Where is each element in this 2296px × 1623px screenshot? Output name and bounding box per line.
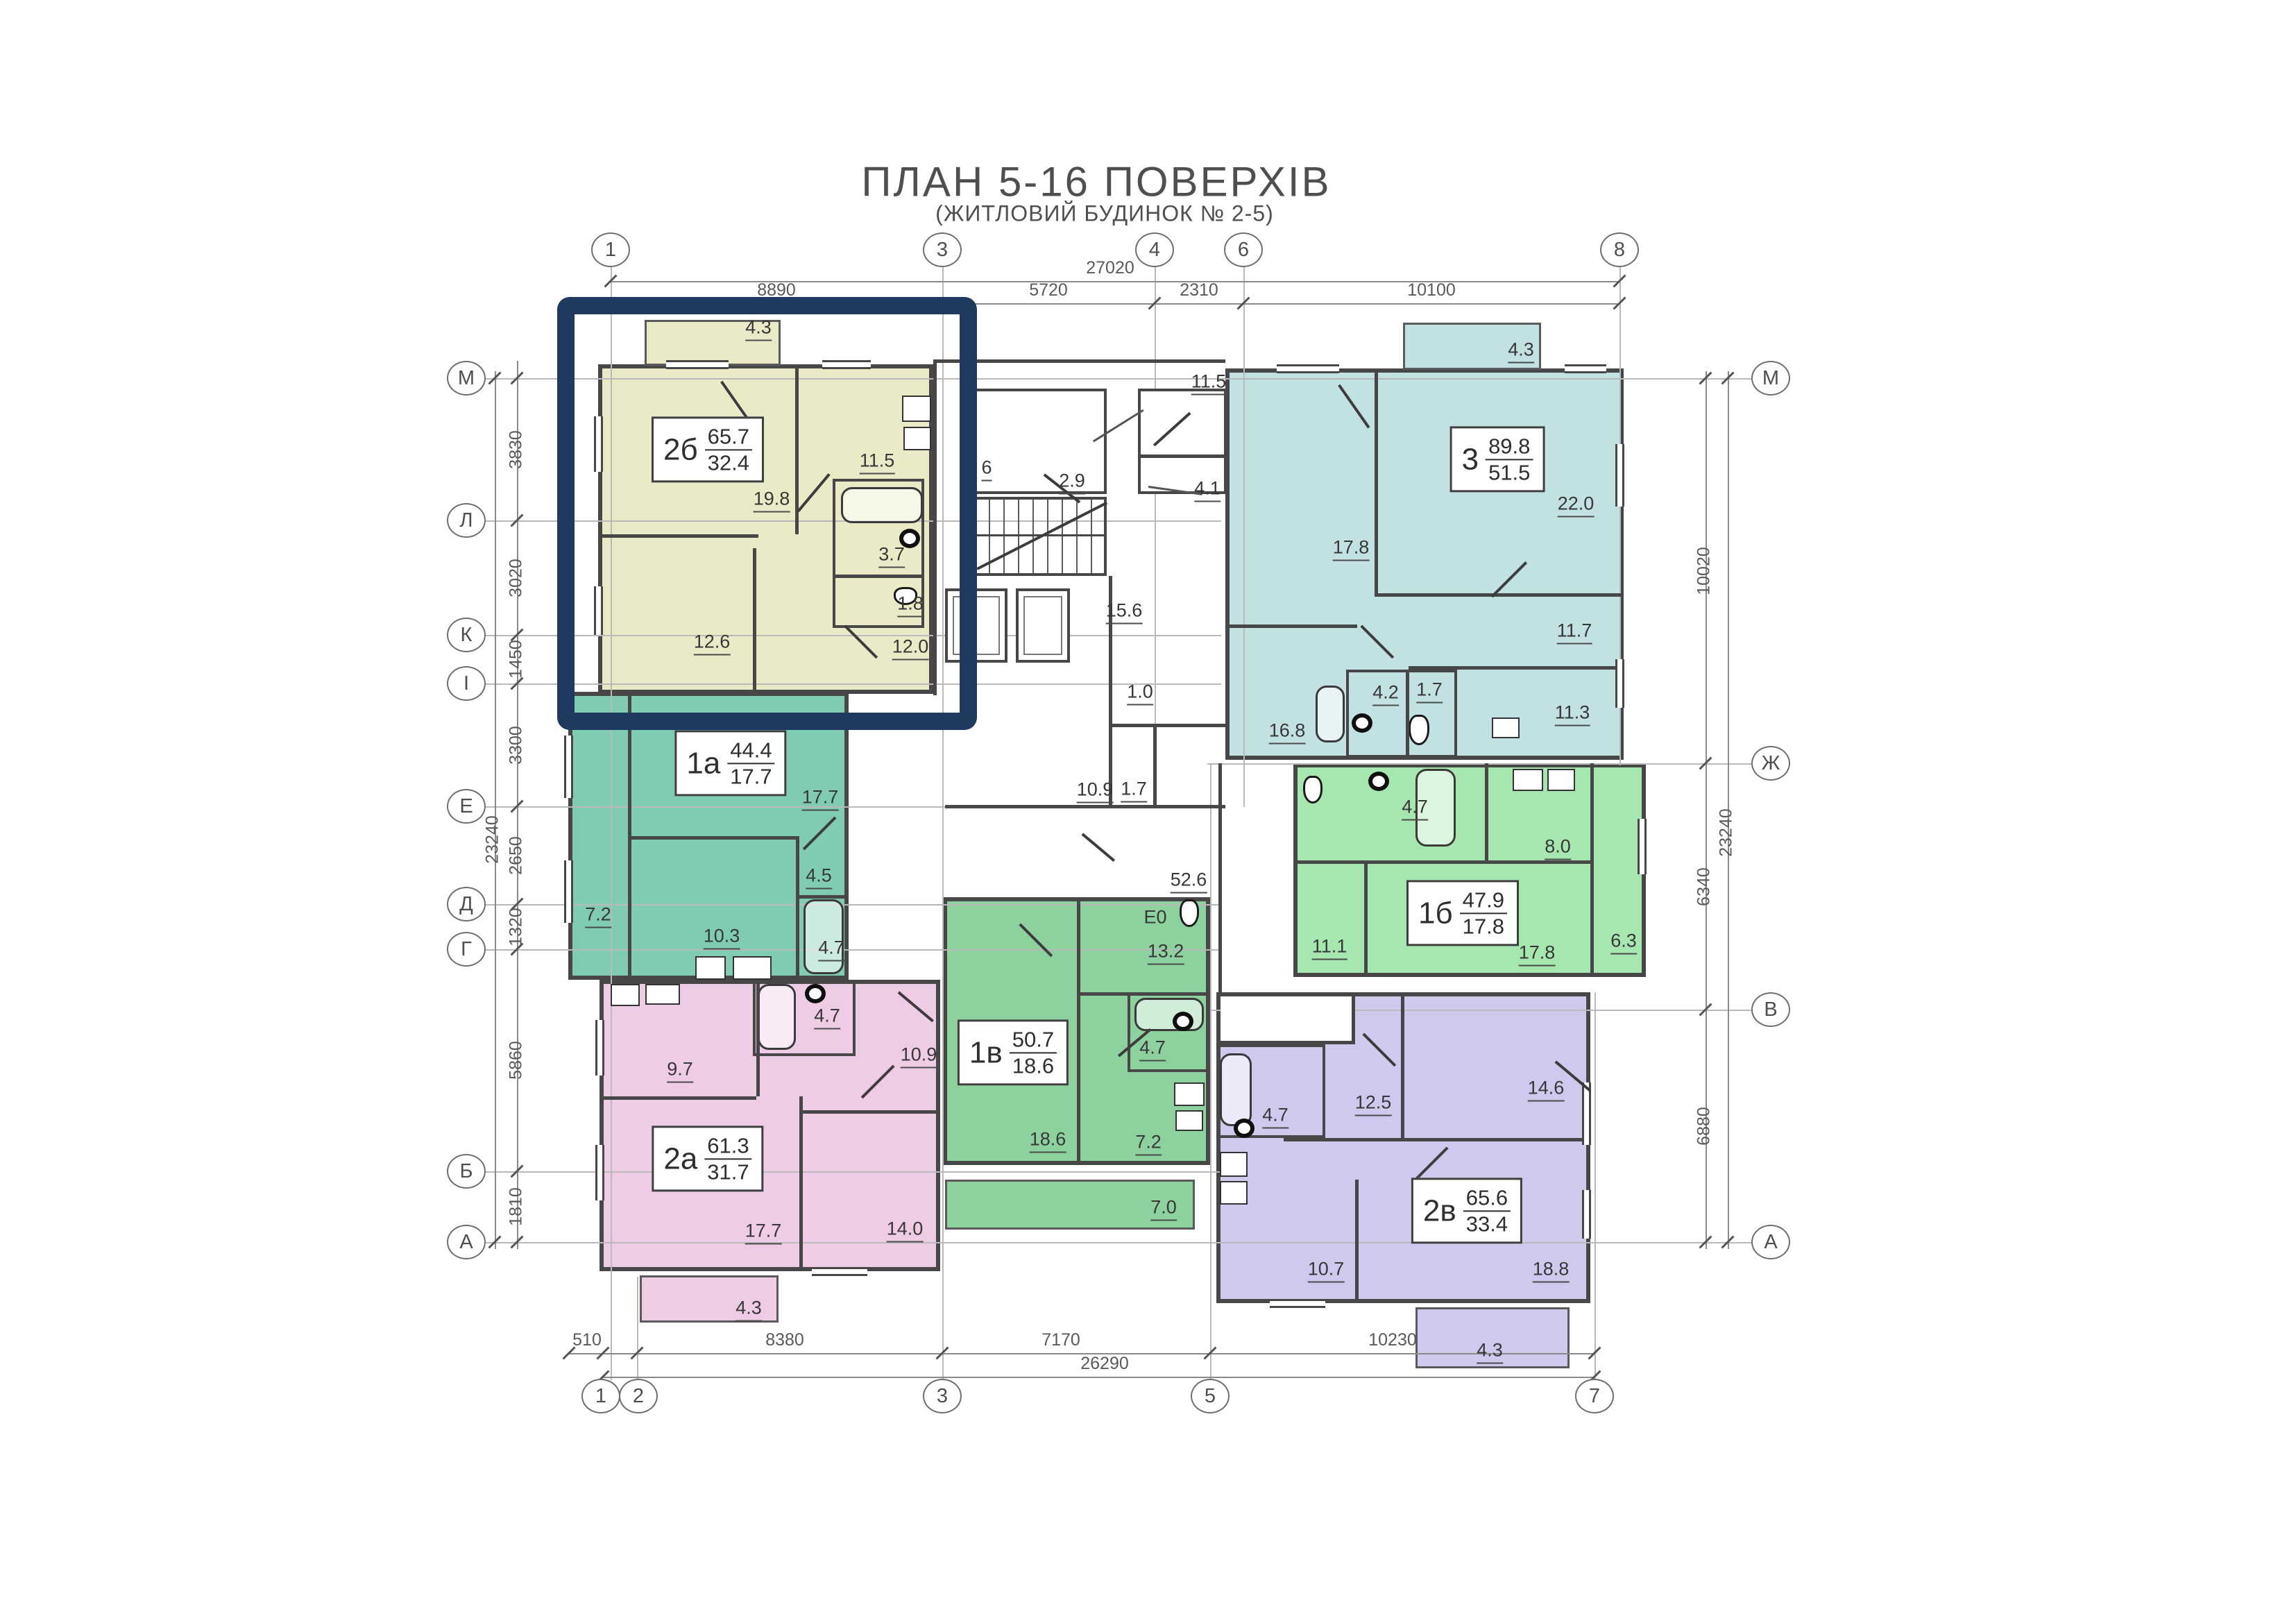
room-area-label: 1.7 — [1121, 779, 1147, 803]
apartment-code: 3 — [1462, 444, 1479, 475]
selected-apartment-highlight — [557, 297, 977, 730]
dim-label: 5720 — [1029, 280, 1068, 300]
room-area-label: 22.0 — [1558, 493, 1595, 518]
sink-icon — [1368, 772, 1389, 791]
room-area-label: 4.7 — [1402, 797, 1428, 821]
room-tag-label: Е0 — [1143, 907, 1166, 928]
wall — [799, 1110, 940, 1114]
dim-label: 5860 — [507, 1041, 527, 1080]
room-area-label: 1.0 — [1127, 681, 1153, 706]
grid-line — [1595, 992, 1596, 1380]
room-area-label: 4.2 — [1372, 682, 1399, 706]
kitchen-unit-icon — [733, 956, 772, 980]
window — [1582, 1082, 1591, 1145]
axis-top-3: 3 — [923, 232, 962, 267]
apartment-code: 1а — [686, 748, 720, 779]
living-area: 31.7 — [707, 1159, 749, 1184]
axis-left-k: К — [447, 618, 486, 652]
axis-top-4: 4 — [1135, 232, 1174, 267]
axis-left-b: Б — [447, 1154, 486, 1189]
living-area: 51.5 — [1488, 460, 1530, 485]
toilet-icon — [1180, 899, 1199, 927]
apartment-code: 2а — [663, 1144, 697, 1174]
axis-left-d: Д — [447, 887, 486, 921]
floor-plan-page: ПЛАН 5-16 ПОВЕРХІВ (ЖИТЛОВИЙ БУДИНОК № 2… — [0, 0, 2296, 1623]
apartment-areas: 61.331.7 — [704, 1133, 751, 1184]
dim-label: 7170 — [1041, 1330, 1080, 1350]
room-area-label: 10.7 — [1308, 1259, 1345, 1283]
room-area-label: 2.9 — [1059, 470, 1085, 495]
stove-icon — [1513, 769, 1543, 791]
door-swing — [1082, 833, 1115, 861]
wall — [1590, 763, 1594, 977]
dim-label: 510 — [572, 1330, 602, 1350]
wall — [1375, 593, 1624, 597]
wall — [1375, 368, 1378, 593]
axis-bottom-5: 5 — [1191, 1379, 1230, 1413]
window — [1638, 819, 1647, 874]
wall — [945, 805, 1225, 808]
room-area-label: 4.7 — [1139, 1037, 1166, 1062]
apartment-areas: 65.633.4 — [1463, 1185, 1511, 1236]
kitchen-unit-icon — [1220, 1181, 1248, 1205]
window — [595, 1145, 604, 1200]
grid-line — [1243, 266, 1245, 807]
wall — [628, 836, 798, 840]
dim-label: 2650 — [507, 836, 527, 875]
room-area-label: 14.0 — [887, 1218, 924, 1243]
axis-left-a: А — [447, 1225, 486, 1259]
dim-label: 3020 — [507, 559, 527, 597]
room-area-label: 17.8 — [1333, 537, 1370, 561]
bathtub-icon — [1134, 998, 1204, 1031]
living-area: 18.6 — [1012, 1053, 1054, 1078]
dim-label: 23240 — [1717, 808, 1737, 857]
toilet-icon — [1409, 715, 1429, 745]
room-area-label: 4.3 — [1477, 1340, 1503, 1364]
room-area-label: 52.6 — [1171, 869, 1207, 894]
sink-icon — [805, 984, 826, 1003]
wall — [1077, 992, 1210, 996]
apartment-1a-tag[interactable]: 1а 44.417.7 — [674, 730, 786, 796]
apartment-2v-tag[interactable]: 2в 65.633.4 — [1411, 1178, 1522, 1243]
wall — [1409, 666, 1624, 670]
window — [564, 860, 573, 923]
apartment-code: 1в — [969, 1037, 1003, 1068]
dim-label: 1450 — [507, 640, 527, 679]
wall — [1225, 624, 1357, 628]
apartment-code: 1б — [1418, 898, 1453, 928]
apartment-1b-tag[interactable]: 1б 47.917.8 — [1406, 880, 1519, 946]
stove-icon — [611, 984, 640, 1006]
stove-icon — [1174, 1082, 1205, 1106]
apartment-areas: 50.718.6 — [1010, 1027, 1057, 1078]
dim-label: 1320 — [507, 908, 527, 946]
bathtub-icon — [758, 984, 796, 1050]
room-area-label: 11.1 — [1312, 936, 1347, 960]
dim-label: 1810 — [507, 1187, 527, 1226]
axis-right-m: М — [1751, 361, 1790, 396]
dim-label: 27020 — [1086, 258, 1134, 278]
sink-icon — [1352, 713, 1372, 733]
total-area: 47.9 — [1460, 887, 1507, 914]
kitchen-unit-icon — [1547, 769, 1575, 791]
kitchen-unit-icon — [1175, 1110, 1203, 1131]
window — [1615, 444, 1624, 507]
room-area-label: 4.5 — [806, 865, 832, 890]
wall — [1355, 1180, 1359, 1303]
apartment-areas: 47.917.8 — [1460, 887, 1507, 938]
room-area-label: 4.1 — [1194, 478, 1221, 502]
wall — [1077, 897, 1080, 1165]
dimension-line — [601, 1377, 1595, 1378]
dim-label: 10100 — [1407, 280, 1456, 300]
wall — [1406, 670, 1409, 758]
grid-line — [1210, 763, 1211, 1380]
room-area-label: 1.7 — [1416, 679, 1443, 704]
wall — [1138, 454, 1227, 458]
room-area-label: 6.3 — [1610, 931, 1637, 955]
wall — [756, 980, 760, 1096]
axis-left-e: Е — [447, 789, 486, 824]
room-area-label: 7.2 — [1135, 1132, 1162, 1156]
total-area: 44.4 — [727, 738, 774, 764]
stove-icon — [695, 956, 726, 980]
room-area-label: 13.2 — [1148, 941, 1184, 965]
room-area-label: 17.7 — [802, 787, 839, 811]
room-area-label: 4.3 — [735, 1298, 762, 1322]
window — [1565, 364, 1606, 373]
axis-top-1: 1 — [591, 232, 630, 267]
wall — [796, 836, 799, 980]
window — [595, 1020, 604, 1076]
dim-label: 3300 — [507, 726, 527, 765]
wall — [1109, 724, 1225, 727]
wall — [1364, 860, 1368, 977]
room-area-label: 4.7 — [1262, 1105, 1289, 1129]
room-area-label: 11.5 — [1191, 371, 1227, 396]
bathtub-icon — [1220, 1053, 1252, 1126]
total-area: 61.3 — [704, 1133, 751, 1159]
axis-bottom-3: 3 — [923, 1379, 962, 1413]
room-area-label: 17.8 — [1519, 942, 1556, 967]
stove-icon — [1492, 717, 1520, 738]
room-area-label: 18.6 — [1030, 1129, 1066, 1153]
apartment-2a-tag[interactable]: 2а 61.331.7 — [652, 1125, 763, 1191]
living-area: 17.7 — [730, 764, 772, 789]
room-area-label: 6 — [981, 457, 992, 482]
axis-right-zh: Ж — [1751, 746, 1790, 781]
room-area-label: 14.6 — [1528, 1078, 1565, 1102]
living-area: 17.8 — [1463, 914, 1504, 939]
toilet-icon — [1303, 776, 1323, 804]
wall — [1485, 763, 1488, 860]
room-area-label: 10.9 — [1077, 779, 1114, 804]
room-area-label: 4.7 — [814, 1005, 840, 1030]
wall — [1284, 1138, 1590, 1141]
axis-bottom-1: 1 — [581, 1379, 620, 1413]
wall — [1218, 763, 1222, 996]
wall — [796, 895, 849, 899]
room-area-label: 8.0 — [1545, 836, 1571, 860]
apartment-3-tag[interactable]: 3 89.851.5 — [1450, 426, 1545, 492]
sink-icon — [1234, 1119, 1255, 1138]
grid-line — [484, 949, 1221, 951]
wall — [799, 1096, 803, 1271]
wall — [599, 1096, 756, 1100]
axis-left-l: Л — [447, 503, 486, 538]
axis-bottom-7: 7 — [1575, 1379, 1614, 1413]
total-area: 50.7 — [1010, 1027, 1057, 1053]
wall — [1401, 992, 1404, 1138]
room-area-label: 7.2 — [585, 904, 611, 928]
stove-icon — [1220, 1152, 1248, 1177]
apartment-1v-tag[interactable]: 1в 50.718.6 — [958, 1019, 1069, 1085]
wall — [1153, 724, 1157, 805]
room-area-label: 11.7 — [1557, 620, 1592, 645]
apartment-code: 2в — [1423, 1196, 1456, 1226]
axis-bottom-2: 2 — [619, 1379, 658, 1413]
room-area-label: 11.3 — [1555, 702, 1590, 726]
sink-icon — [1173, 1012, 1193, 1031]
page-title: ПЛАН 5-16 ПОВЕРХІВ — [861, 158, 1331, 206]
dim-label: 3830 — [507, 430, 527, 469]
corridor-notch — [1221, 996, 1354, 1042]
axis-top-8: 8 — [1600, 232, 1639, 267]
total-area: 89.8 — [1486, 434, 1533, 460]
bathtub-icon — [1316, 686, 1345, 742]
room-area-label: 17.7 — [745, 1221, 782, 1245]
axis-top-6: 6 — [1224, 232, 1263, 267]
dim-label: 10230 — [1368, 1330, 1417, 1350]
wall — [1293, 860, 1590, 864]
axis-left-g: Г — [447, 932, 486, 967]
window — [812, 1267, 867, 1276]
axis-right-v: В — [1751, 992, 1790, 1027]
room-area-label: 4.3 — [1508, 339, 1534, 364]
room-area-label: 9.7 — [667, 1059, 693, 1083]
dim-label: 6340 — [1694, 867, 1715, 906]
room-area-label: 4.7 — [818, 937, 844, 962]
dim-label: 2310 — [1180, 280, 1218, 300]
room-area-label: 10.3 — [704, 926, 740, 950]
dim-label: 8380 — [765, 1330, 804, 1350]
room-area-label: 7.0 — [1150, 1197, 1177, 1221]
axis-right-a: А — [1751, 1225, 1790, 1259]
dim-label: 23240 — [483, 815, 503, 864]
axis-left-i: І — [447, 666, 486, 701]
total-area: 65.6 — [1463, 1185, 1511, 1212]
dim-label: 10020 — [1694, 547, 1715, 595]
kitchen-unit-icon — [645, 984, 680, 1005]
dimension-line — [495, 371, 496, 1249]
living-area: 33.4 — [1466, 1212, 1508, 1237]
window — [1615, 659, 1624, 708]
room-area-label: 16.8 — [1269, 720, 1306, 745]
room-area-label: 10.9 — [901, 1044, 937, 1069]
wall — [933, 359, 1225, 363]
room-area-label: 15.6 — [1106, 600, 1143, 624]
window — [1582, 1190, 1591, 1239]
apartment-areas: 44.417.7 — [727, 738, 774, 788]
elevator-shaft — [1016, 588, 1070, 663]
room-area-label: 18.8 — [1533, 1259, 1570, 1283]
wall — [1221, 1041, 1355, 1044]
grid-line — [637, 1277, 638, 1380]
grid-line — [1207, 763, 1753, 765]
window — [1277, 364, 1339, 373]
page-subtitle: (ЖИТЛОВИЙ БУДИНОК № 2-5) — [935, 201, 1274, 227]
room-area-label: 12.5 — [1355, 1092, 1392, 1116]
dim-label: 6880 — [1694, 1107, 1715, 1146]
window — [1270, 1299, 1325, 1308]
dim-label: 26290 — [1080, 1354, 1129, 1374]
axis-left-m: М — [447, 361, 486, 396]
grid-line — [484, 1242, 1753, 1243]
apartment-areas: 89.851.5 — [1486, 434, 1533, 484]
wall — [1352, 992, 1355, 1044]
window — [564, 736, 573, 798]
